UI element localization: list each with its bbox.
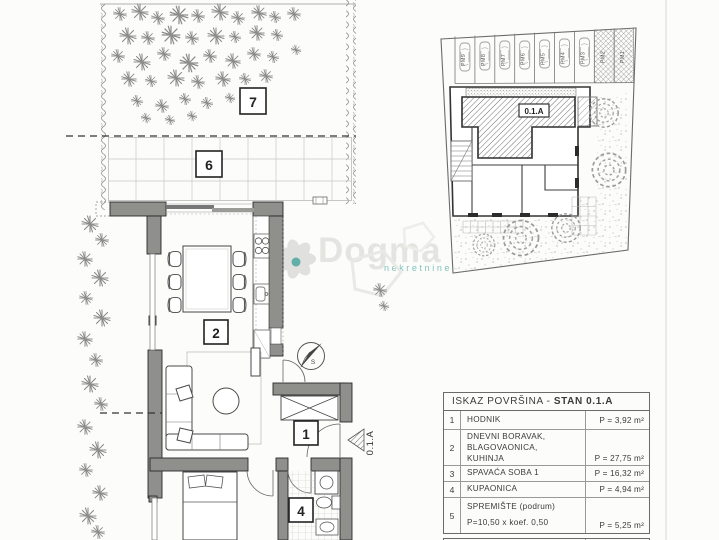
room-name: HODNIK (467, 415, 583, 426)
unit-terrace-strip (466, 88, 576, 97)
svg-text:PM6: PM6 (521, 53, 527, 65)
row-area-value: P = 27,75 m² (585, 430, 649, 466)
room-name: DNEVNI BORAVAK, (467, 432, 583, 443)
entrance-arrow (348, 429, 364, 451)
pillow (206, 475, 224, 488)
row-area-value: P = 4,94 m² (585, 482, 649, 497)
room-name: SPREMIŠTE (podrum) (467, 502, 583, 513)
room-name: BLAGOVAONICA, (467, 443, 583, 454)
garden-area: 7 (96, 0, 356, 216)
coffee-table (213, 388, 239, 414)
row-number: 2 (444, 430, 461, 466)
gutter-box (313, 197, 327, 204)
scanned-floorplan-page: Dogma nekretnine (0, 0, 719, 540)
room-name-note: P=10,50 x koef. 0,50 (467, 518, 583, 529)
area-table-title-prefix: ISKAZ POVRŠINA - (452, 396, 554, 407)
svg-text:PM1: PM1 (620, 51, 626, 63)
plant-right (374, 284, 387, 297)
room-label-hall: 1 (302, 427, 310, 442)
dining-table (183, 246, 231, 312)
hedge-right (346, 0, 356, 204)
svg-text:PM7: PM7 (501, 54, 507, 66)
washing-machine (315, 471, 338, 494)
room-label-terrace: 6 (205, 157, 213, 173)
dining-set (168, 246, 246, 313)
toilet-tank (332, 496, 340, 509)
compass-rose: S (298, 343, 325, 370)
area-table: ISKAZ POVRŠINA - STAN 0.1.A 1 HODNIK P =… (443, 392, 650, 540)
watermark-flower-logo (275, 223, 434, 296)
row-area-value: P = 16,32 m² (585, 466, 649, 481)
svg-text:PM9: PM9 (461, 54, 467, 66)
compass-north-label: S (311, 359, 316, 366)
cushion (177, 428, 193, 443)
entrance-marker: 0.1.A (348, 429, 376, 455)
terrace-sliding-door (165, 204, 254, 212)
unit-badge-label: 0.1.A (524, 107, 543, 116)
unit-code-vertical: 0.1.A (365, 430, 376, 455)
area-table-title: ISKAZ POVRŠINA - STAN 0.1.A (444, 393, 649, 411)
svg-text:PM8: PM8 (481, 54, 487, 66)
logo-pentagon-small (404, 223, 434, 251)
table-row: 3 SPAVAĆA SOBA 1 P = 16,32 m² (444, 466, 649, 482)
table-row: 1 HODNIK P = 3,92 m² (444, 411, 649, 430)
pillow (188, 475, 206, 488)
row-number: 4 (444, 482, 461, 497)
toilet-bowl (317, 497, 332, 508)
row-number: 1 (444, 411, 461, 429)
area-table-main: ISKAZ POVRŠINA - STAN 0.1.A 1 HODNIK P =… (443, 392, 650, 534)
sofa-corner (166, 348, 261, 450)
table-row: 2 DNEVNI BORAVAK, BLAGOVAONICA, KUHINJA … (444, 430, 649, 466)
terrace-paving-grid (109, 138, 351, 200)
table-row: 5 SPREMIŠTE (podrum) P=10,50 x koef. 0,5… (444, 498, 649, 533)
row-number: 5 (444, 498, 461, 533)
site-building: 0.1.A (450, 87, 597, 217)
bedroom (183, 472, 237, 540)
bath-sink (316, 519, 338, 535)
hedge-left (97, 4, 106, 210)
kitchen-counter (253, 216, 270, 358)
plant-row-left (78, 216, 110, 538)
logo-center-dot (292, 258, 301, 267)
area-table-title-unit: STAN 0.1.A (554, 396, 613, 407)
plant-right (379, 301, 389, 311)
hallway: 1 (281, 396, 338, 445)
svg-text:PM3: PM3 (580, 52, 586, 64)
site-plan: PM9 PM8 PM7 PM6 PM5 PM4 PM3 PM2 PM1 (441, 28, 636, 273)
room-name: KUPAONICA (467, 484, 583, 495)
stove (254, 234, 269, 258)
table-row: 4 KUPAONICA P = 4,94 m² (444, 482, 649, 498)
bathroom: 4 (288, 471, 340, 540)
floor-plan: 7 6 (66, 0, 389, 540)
room-name: SPAVAĆA SOBA 1 (467, 468, 583, 479)
svg-text:PM5: PM5 (541, 53, 547, 65)
garden-tree-sketch (112, 4, 301, 125)
row-area-value: P = 5,25 m² (585, 498, 649, 533)
room-label-bath: 4 (297, 504, 305, 519)
svg-text:PM4: PM4 (561, 52, 567, 64)
row-area-value: P = 3,92 m² (585, 411, 649, 429)
building-stairs (451, 141, 472, 181)
room-label-living: 2 (212, 326, 220, 341)
tv-bench (251, 348, 260, 376)
terrace-area: 6 (109, 138, 352, 201)
room-label-garden: 7 (249, 94, 257, 110)
room-name: KUHINJA (467, 454, 583, 465)
parking-labels: PM9 PM8 PM7 PM6 PM5 PM4 PM3 PM2 PM1 (461, 51, 626, 66)
unit-garden-hatched (578, 97, 597, 126)
svg-text:PM2: PM2 (600, 51, 606, 63)
row-number: 3 (444, 466, 461, 481)
